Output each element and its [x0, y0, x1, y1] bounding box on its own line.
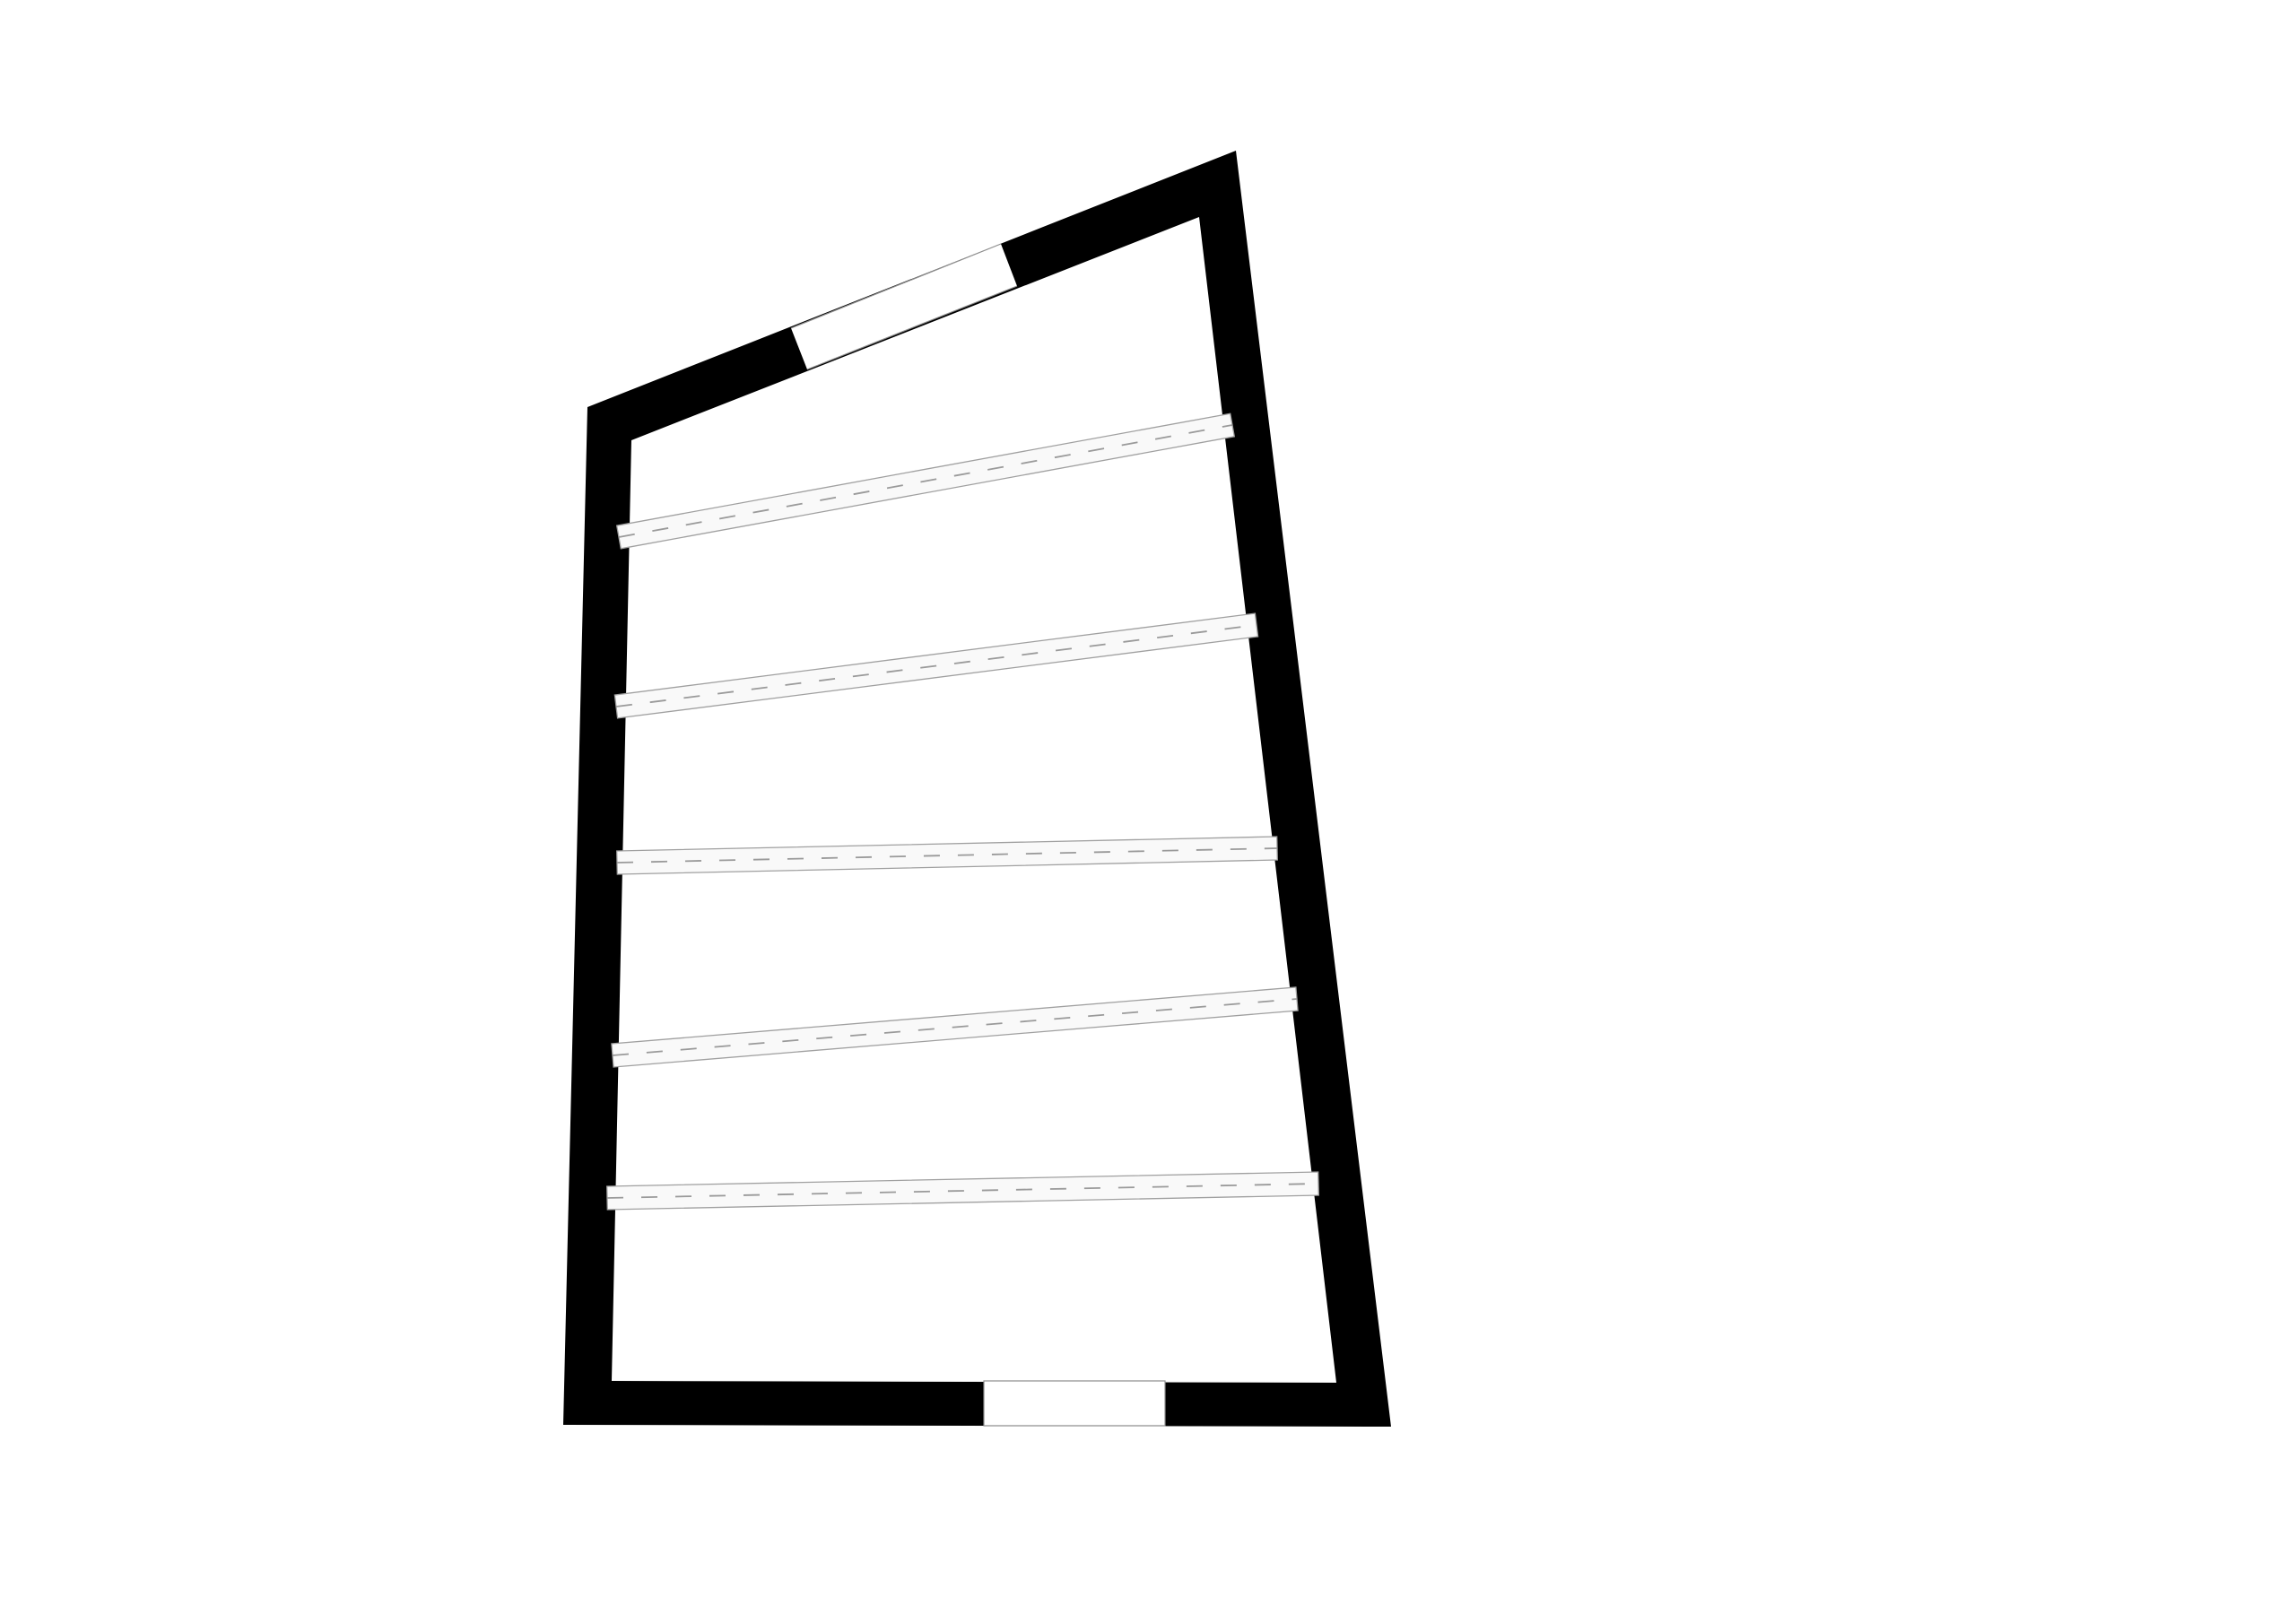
- canvas-background: [0, 0, 2296, 1623]
- floor-plan-page: [0, 0, 2296, 1623]
- bottom-wall-opening: [984, 1381, 1165, 1426]
- floor-plan-svg: [0, 0, 2296, 1623]
